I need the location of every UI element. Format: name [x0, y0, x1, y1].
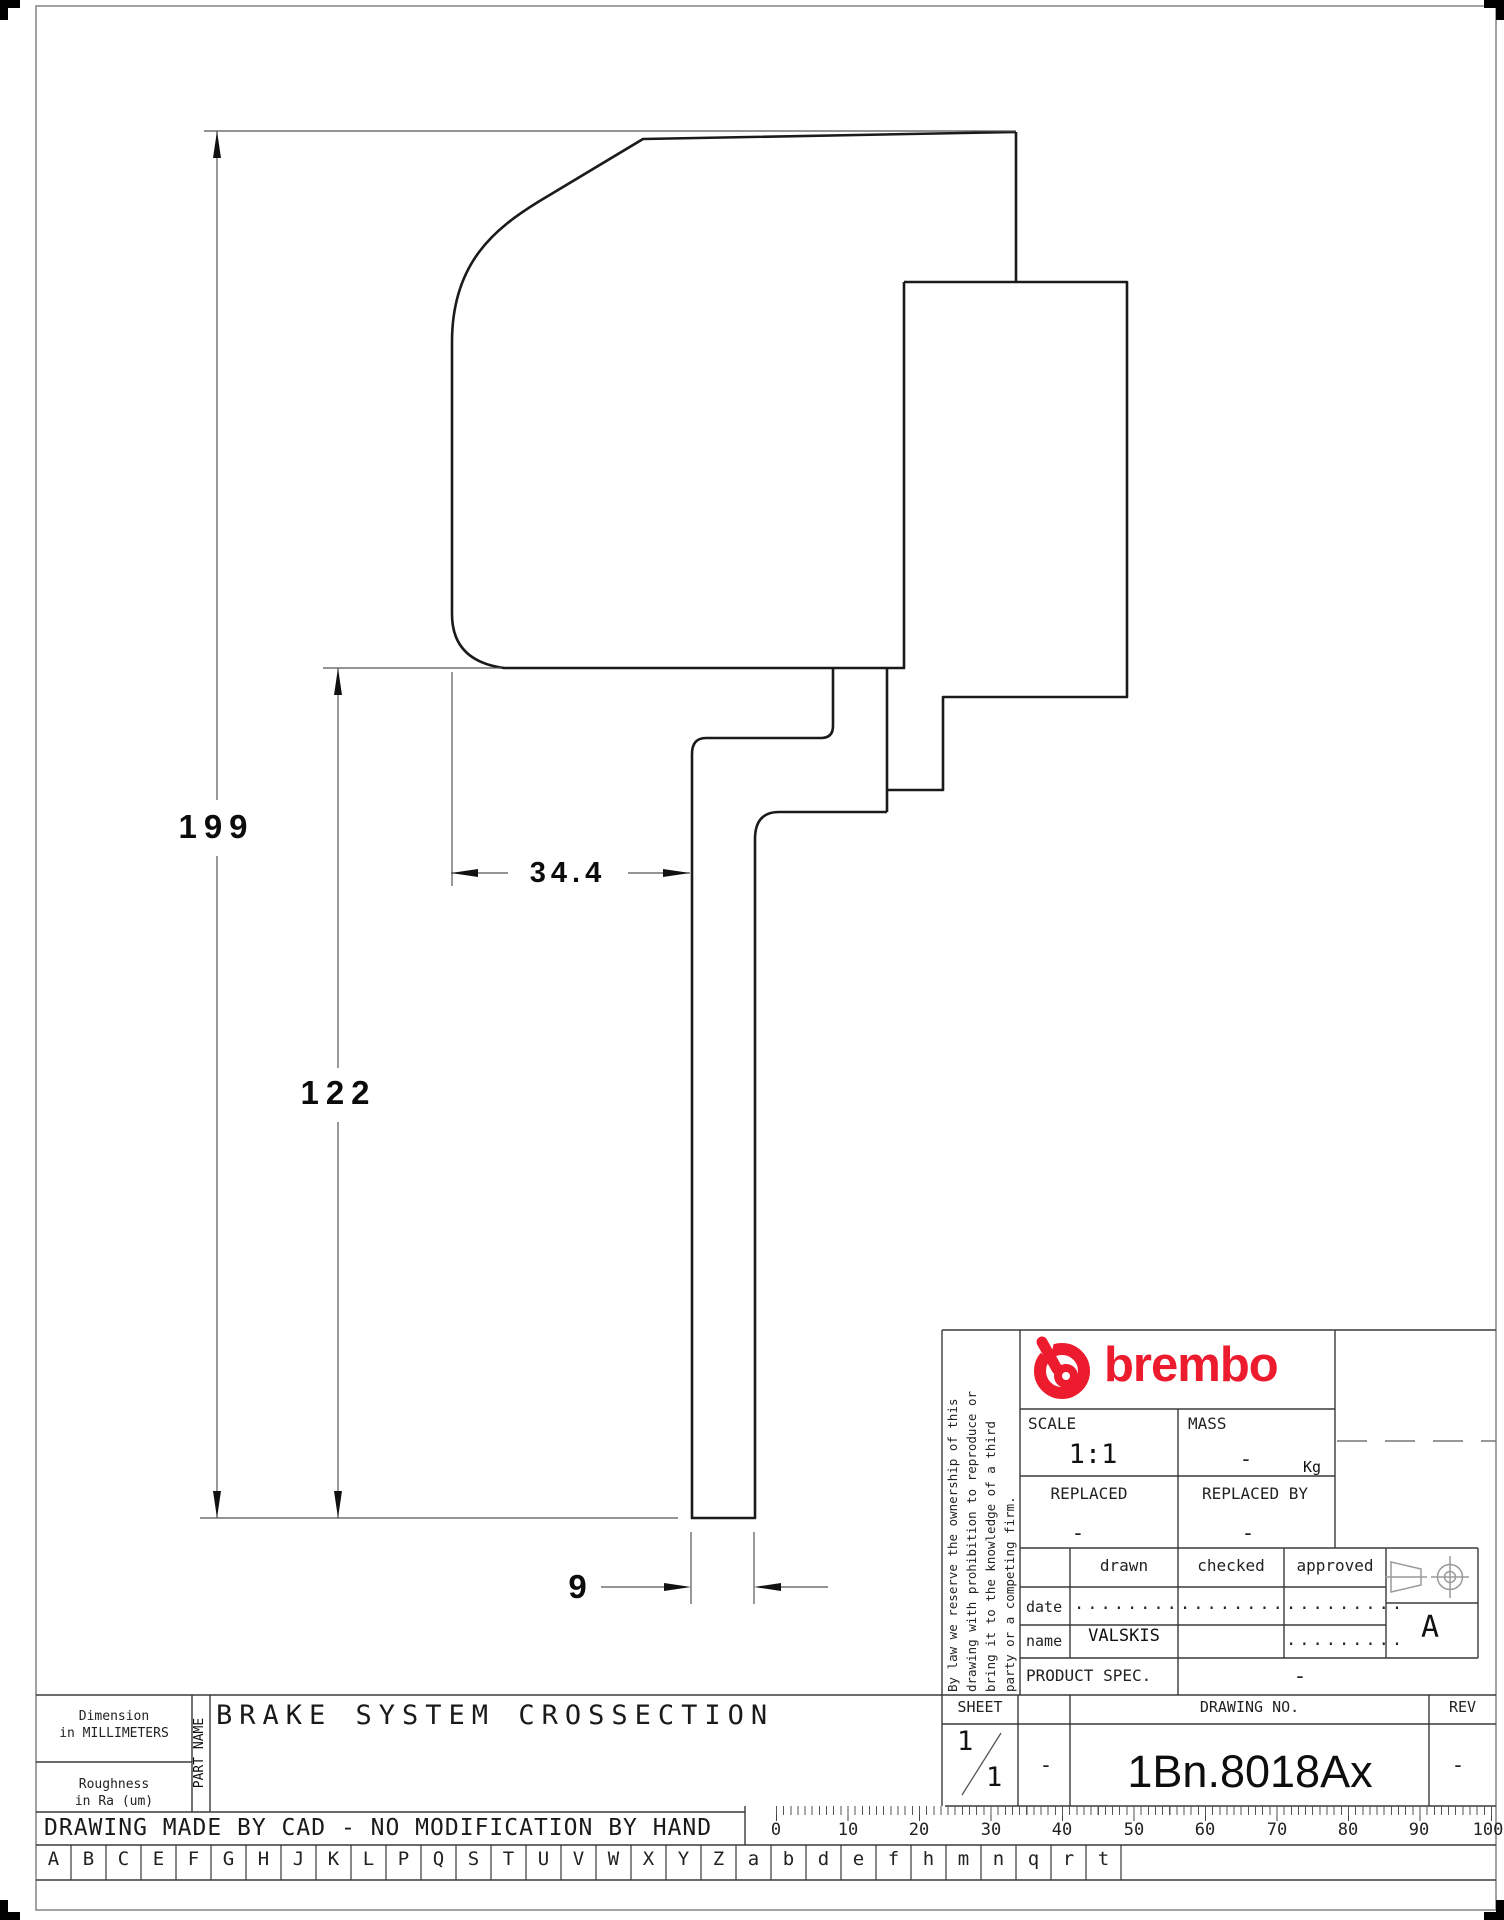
- caliper-outline: [452, 132, 1127, 790]
- date-row-label: date: [1026, 1600, 1062, 1616]
- roughness-note-line1: Roughness: [36, 1776, 192, 1793]
- ruler-label-100: 100: [1466, 1822, 1504, 1840]
- zone-letter: e: [841, 1850, 876, 1870]
- sheet-label: SHEET: [942, 1700, 1018, 1716]
- zone-letter: S: [456, 1850, 491, 1870]
- projection-letter: A: [1414, 1612, 1446, 1644]
- zone-letter: f: [876, 1850, 911, 1870]
- legal-line-2: drawing with prohibition to reproduce or: [962, 1330, 981, 1692]
- units-note-line1: Dimension: [36, 1708, 192, 1725]
- checked-column-header: checked: [1178, 1558, 1284, 1575]
- date-checked-value: .........: [1180, 1596, 1284, 1614]
- ruler-label-20: 20: [894, 1822, 944, 1840]
- drawing-sheet: 199 122 34.4 9 By law we reserve the own…: [0, 0, 1504, 1920]
- zone-letter: U: [526, 1850, 561, 1870]
- ruler-label-60: 60: [1180, 1822, 1230, 1840]
- zone-letter: X: [631, 1850, 666, 1870]
- mass-unit: Kg: [1303, 1460, 1321, 1476]
- zone-letter: P: [386, 1850, 421, 1870]
- date-drawn-value: .........: [1074, 1596, 1178, 1614]
- zone-letter: n: [981, 1850, 1016, 1870]
- sheet-total: 1: [986, 1764, 1002, 1792]
- name-row-label: name: [1026, 1634, 1062, 1650]
- part-name-value: BRAKE SYSTEM CROSSECTION: [216, 1702, 774, 1730]
- dimension-arrowheads: [213, 131, 781, 1591]
- zone-letter: q: [1016, 1850, 1051, 1870]
- legal-notice: By law we reserve the ownership of this …: [943, 1330, 1019, 1692]
- units-note: Dimension in MILLIMETERS: [36, 1708, 192, 1742]
- zone-letter: K: [316, 1850, 351, 1870]
- cad-canvas: [0, 0, 1504, 1920]
- zone-letter: E: [141, 1850, 176, 1870]
- roughness-note: Roughness in Ra (um): [36, 1776, 192, 1810]
- zone-letter: d: [806, 1850, 841, 1870]
- dim-label-9: 9: [559, 1570, 603, 1605]
- zone-letter: C: [106, 1850, 141, 1870]
- ruler-label-70: 70: [1252, 1822, 1302, 1840]
- roughness-note-line2: in Ra (um): [36, 1793, 192, 1810]
- zone-letter: Z: [701, 1850, 736, 1870]
- replaced-by-label: REPLACED BY: [1182, 1486, 1328, 1503]
- legal-line-1: By law we reserve the ownership of this: [943, 1330, 962, 1692]
- ruler-label-0: 0: [751, 1822, 801, 1840]
- zone-letter: J: [281, 1850, 316, 1870]
- ruler-label-80: 80: [1323, 1822, 1373, 1840]
- ruler-label-50: 50: [1109, 1822, 1159, 1840]
- approved-column-header: approved: [1284, 1558, 1386, 1575]
- drawing-no-label: DRAWING NO.: [1070, 1700, 1429, 1716]
- zone-letter: F: [176, 1850, 211, 1870]
- replaced-by-value: -: [1228, 1522, 1268, 1544]
- name-approved-value: .........: [1286, 1632, 1386, 1650]
- rev-value: -: [1440, 1754, 1476, 1776]
- projection-symbol-icon: [1385, 1556, 1469, 1598]
- units-note-line2: in MILLIMETERS: [36, 1725, 192, 1742]
- sheet-current: 1: [957, 1728, 973, 1756]
- sheet-extra-value: -: [1028, 1754, 1064, 1776]
- scale-value: 1:1: [1048, 1441, 1138, 1469]
- zone-letter: Y: [666, 1850, 701, 1870]
- zone-letter: Q: [421, 1850, 456, 1870]
- disc-outline: [692, 668, 887, 1518]
- name-drawn-value: VALSKIS: [1070, 1628, 1178, 1646]
- zone-letter: G: [211, 1850, 246, 1870]
- brembo-logo-icon: [1030, 1332, 1084, 1393]
- rev-label: REV: [1429, 1700, 1496, 1716]
- dim-label-199: 199: [148, 810, 285, 845]
- zone-letter: r: [1051, 1850, 1086, 1870]
- mass-value: -: [1228, 1448, 1264, 1470]
- zone-letter: B: [71, 1850, 106, 1870]
- replaced-label: REPLACED: [1024, 1486, 1154, 1503]
- zone-letter: V: [561, 1850, 596, 1870]
- zone-letter: H: [246, 1850, 281, 1870]
- zone-letter: A: [36, 1850, 71, 1870]
- ruler-label-30: 30: [966, 1822, 1016, 1840]
- zone-letter: T: [491, 1850, 526, 1870]
- replaced-value: -: [1058, 1522, 1098, 1544]
- product-spec-value: -: [1280, 1665, 1320, 1687]
- zone-letter: a: [736, 1850, 771, 1870]
- legal-line-3: bring it to the knowledge of a third: [981, 1330, 1000, 1692]
- drawn-column-header: drawn: [1070, 1558, 1178, 1575]
- mass-label: MASS: [1188, 1416, 1227, 1433]
- ruler-label-10: 10: [823, 1822, 873, 1840]
- drawing-number: 1Bn.8018Ax: [1075, 1748, 1425, 1795]
- scale-label: SCALE: [1028, 1416, 1076, 1433]
- ruler-label-40: 40: [1037, 1822, 1087, 1840]
- corner-marks: [0, 0, 1504, 1920]
- dim-label-34-4: 34.4: [498, 858, 638, 888]
- brand-wordmark: brembo: [1104, 1340, 1278, 1391]
- ruler-label-90: 90: [1394, 1822, 1444, 1840]
- zone-letter: L: [351, 1850, 386, 1870]
- product-spec-label: PRODUCT SPEC.: [1026, 1668, 1151, 1685]
- zone-letter: t: [1086, 1850, 1121, 1870]
- zone-letter: W: [596, 1850, 631, 1870]
- legal-line-4: party or a competing firm.: [1000, 1330, 1019, 1692]
- date-approved-value: .........: [1286, 1596, 1386, 1614]
- zone-letter: m: [946, 1850, 981, 1870]
- part-name-label: PART NAME: [193, 1698, 209, 1808]
- dim-label-122: 122: [270, 1076, 407, 1111]
- zone-letter: h: [911, 1850, 946, 1870]
- ruler-minor-ticks: [776, 1806, 1492, 1815]
- zone-letter: b: [771, 1850, 806, 1870]
- cad-note: DRAWING MADE BY CAD - NO MODIFICATION BY…: [44, 1816, 712, 1840]
